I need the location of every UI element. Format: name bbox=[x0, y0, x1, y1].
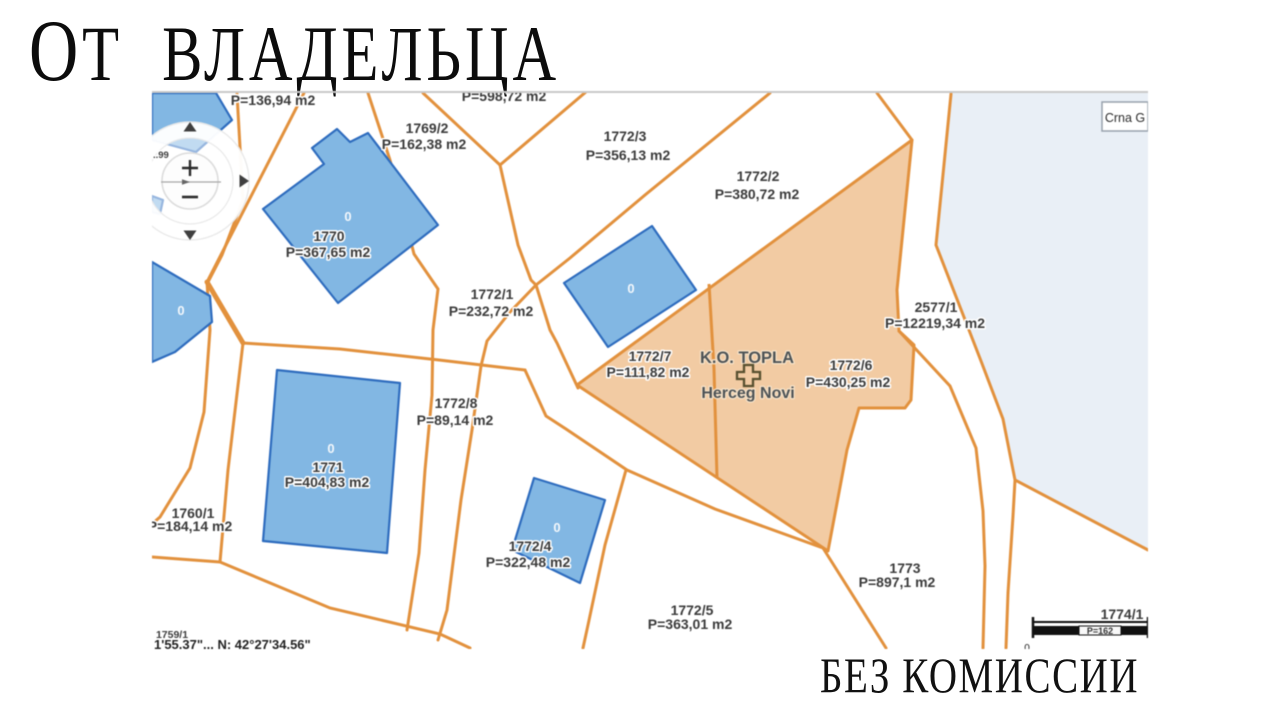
svg-text:P=598,72 m2: P=598,72 m2 bbox=[462, 88, 547, 104]
svg-text:P=89,14 m2: P=89,14 m2 bbox=[417, 412, 494, 428]
svg-text:P=356,13 m2: P=356,13 m2 bbox=[586, 147, 671, 163]
svg-text:0: 0 bbox=[627, 281, 634, 296]
svg-text:1'55.37"... N: 42°27'34.56": 1'55.37"... N: 42°27'34.56" bbox=[154, 637, 311, 652]
svg-text:Herceg Novi: Herceg Novi bbox=[701, 385, 794, 402]
svg-text:P=322,48 m2: P=322,48 m2 bbox=[486, 554, 571, 570]
svg-text:P=430,25 m2: P=430,25 m2 bbox=[806, 374, 891, 390]
svg-text:..99: ..99 bbox=[153, 150, 169, 161]
svg-text:P=897,1 m2: P=897,1 m2 bbox=[859, 574, 936, 590]
svg-text:1772/2: 1772/2 bbox=[737, 168, 780, 184]
svg-text:0: 0 bbox=[344, 209, 351, 224]
svg-text:P=380,72 m2: P=380,72 m2 bbox=[715, 186, 800, 202]
svg-text:P=367,65 m2: P=367,65 m2 bbox=[286, 244, 371, 260]
svg-text:0: 0 bbox=[177, 303, 184, 318]
svg-text:1772/4: 1772/4 bbox=[509, 538, 552, 554]
svg-text:1772/1: 1772/1 bbox=[471, 286, 514, 302]
svg-text:P=162,38 m2: P=162,38 m2 bbox=[382, 136, 467, 152]
svg-text:P=232,72 m2: P=232,72 m2 bbox=[449, 303, 534, 319]
svg-text:P=12219,34 m2: P=12219,34 m2 bbox=[885, 315, 985, 331]
svg-text:0: 0 bbox=[327, 441, 334, 456]
svg-text:1772/3: 1772/3 bbox=[604, 128, 647, 144]
svg-text:0: 0 bbox=[553, 520, 560, 535]
svg-text:P=404,83 m2: P=404,83 m2 bbox=[285, 474, 370, 490]
svg-text:Crna G: Crna G bbox=[1105, 111, 1145, 125]
svg-text:1770: 1770 bbox=[313, 228, 344, 244]
svg-text:1772/6: 1772/6 bbox=[830, 357, 873, 373]
svg-text:P=363,01 m2: P=363,01 m2 bbox=[648, 616, 733, 632]
svg-text:1771: 1771 bbox=[312, 459, 343, 475]
svg-text:P=184,14 m2: P=184,14 m2 bbox=[148, 518, 233, 534]
svg-text:2577/1: 2577/1 bbox=[915, 299, 958, 315]
svg-text:1772/7: 1772/7 bbox=[629, 348, 672, 364]
svg-text:1774/1: 1774/1 bbox=[1101, 606, 1144, 622]
svg-text:P=162: P=162 bbox=[1087, 626, 1113, 636]
svg-text:1769/2: 1769/2 bbox=[406, 120, 449, 136]
svg-text:P=136,94 m2: P=136,94 m2 bbox=[231, 92, 316, 108]
svg-text:1772/8: 1772/8 bbox=[435, 395, 478, 411]
svg-text:P=111,82 m2: P=111,82 m2 bbox=[607, 364, 690, 380]
